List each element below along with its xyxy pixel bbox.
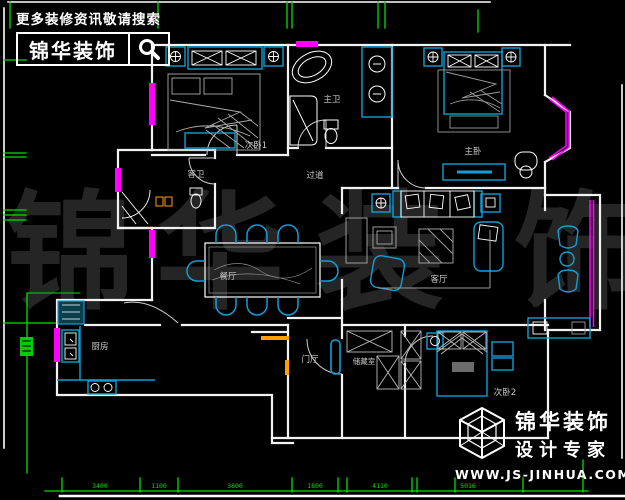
room-label-bedroom1: 次卧1 xyxy=(245,140,267,151)
stool xyxy=(515,152,537,178)
brand-name: 锦华装饰 xyxy=(18,34,128,64)
dining-chairs xyxy=(187,225,338,315)
nightstand xyxy=(492,358,513,370)
footer-brand-block: 锦华装饰 设计专家 WWW.JS-JINHUA.COM xyxy=(455,404,623,482)
room-label-hallway: 过道 xyxy=(306,170,324,181)
window xyxy=(115,168,121,192)
threshold xyxy=(285,360,289,375)
brand-search-box: 锦华装饰 xyxy=(16,32,170,66)
balcony-chair xyxy=(558,270,578,292)
floor-plan-screenshot: 锦 华 装 饰 xyxy=(0,0,625,500)
brand-tagline: 更多装修资讯敬请搜索 xyxy=(16,8,170,28)
entry-door-leaf xyxy=(331,340,340,374)
room-label-dining: 餐厅 xyxy=(219,272,237,282)
side-table xyxy=(373,227,396,248)
windows xyxy=(54,41,594,362)
shower-curtain xyxy=(122,190,150,218)
furniture-dining xyxy=(187,225,338,315)
header-brand-block: 更多装修资讯敬请搜索 锦华装饰 xyxy=(16,8,170,66)
fridge xyxy=(58,301,84,324)
window xyxy=(296,41,318,47)
footer-brand-url: WWW.JS-JINHUA.COM xyxy=(455,467,623,482)
dimension-value: 4110 xyxy=(372,482,388,490)
footer-brand-subtitle: 设计专家 xyxy=(515,436,611,462)
bottom-dimension-values: 3400 1100 3600 1800 4110 5016 xyxy=(92,482,476,490)
footer-brand-name: 锦华装饰 xyxy=(515,406,611,436)
balcony-cabinet xyxy=(528,318,590,338)
sofa-armrest xyxy=(393,191,401,217)
room-label-master-bedroom: 主卧 xyxy=(464,146,482,157)
dimension-value: 3600 xyxy=(227,482,243,490)
room-label-master-bath: 主卫 xyxy=(323,94,341,105)
window xyxy=(149,83,155,125)
window xyxy=(149,230,155,258)
furniture-balcony xyxy=(528,226,590,338)
room-label-guest-bath: 客卫 xyxy=(187,169,205,180)
counter xyxy=(57,326,155,380)
av-equipment xyxy=(481,194,500,212)
room-label-entry: 门厅 xyxy=(301,354,319,365)
coffee-table xyxy=(419,229,453,263)
threshold xyxy=(261,336,289,340)
dimension-value: 5016 xyxy=(460,482,476,490)
furniture-master-bedroom xyxy=(424,48,537,180)
sink-counter xyxy=(362,47,392,117)
room-label-bedroom2: 次卧2 xyxy=(494,387,516,398)
pillow xyxy=(452,362,474,372)
bed-bench xyxy=(450,116,498,128)
cube-logo-icon xyxy=(455,404,509,464)
room-label-living: 客厅 xyxy=(430,274,448,285)
hall-cabinet xyxy=(346,218,367,263)
dimension-value: 1100 xyxy=(151,482,167,490)
toilet xyxy=(191,194,201,208)
furniture-living xyxy=(346,191,503,292)
room-label-kitchen: 厨房 xyxy=(91,341,108,352)
nightstand xyxy=(492,342,513,356)
balcony-window xyxy=(590,200,594,327)
search-icon xyxy=(128,34,168,64)
bathtub xyxy=(287,45,337,89)
chaise xyxy=(474,222,503,271)
dimension-value: 3400 xyxy=(92,482,108,490)
wardrobe xyxy=(188,47,262,69)
toilet xyxy=(325,129,337,144)
window xyxy=(54,328,60,362)
balcony-chair xyxy=(558,226,578,248)
armchair xyxy=(369,255,405,292)
balcony-table xyxy=(560,252,574,266)
furniture-bedroom2 xyxy=(427,331,513,396)
bed xyxy=(168,74,260,150)
dining-table xyxy=(205,243,320,297)
room-label-storage: 储藏室 xyxy=(353,356,376,366)
dimension-value: 1800 xyxy=(307,482,323,490)
section-marker xyxy=(156,197,172,206)
furniture-bedroom1 xyxy=(166,47,283,150)
